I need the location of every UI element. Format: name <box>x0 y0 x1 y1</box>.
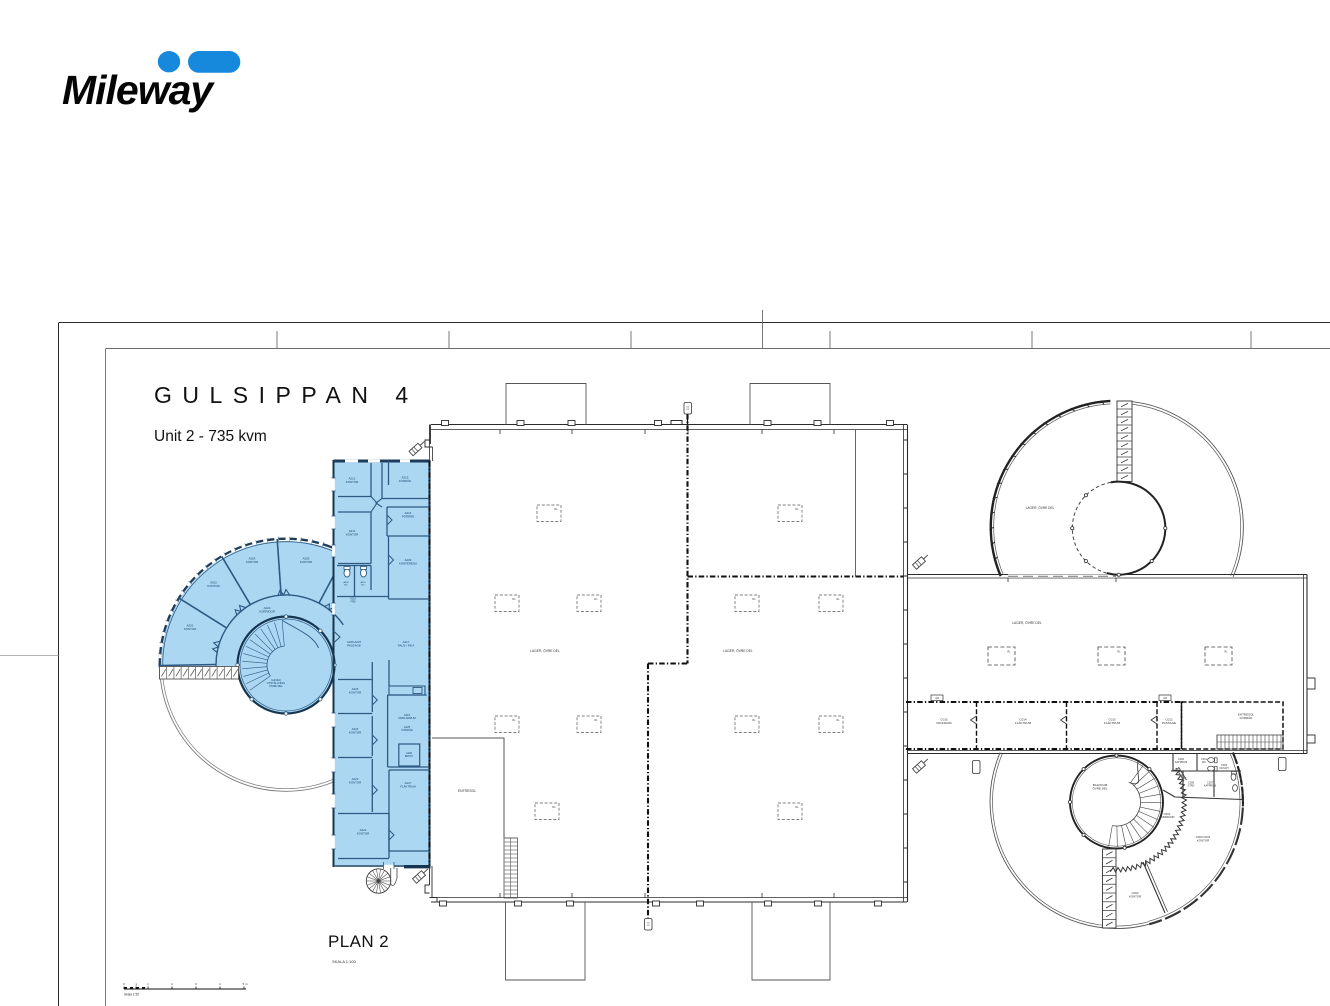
svg-text:0: 0 <box>123 982 125 986</box>
svg-text:RL: RL <box>1117 650 1121 654</box>
svg-text:2: 2 <box>171 982 173 986</box>
svg-text:Mileway: Mileway <box>62 67 215 113</box>
svg-text:RL: RL <box>795 805 799 809</box>
svg-text:RL: RL <box>512 597 516 601</box>
svg-text:RL: RL <box>594 597 598 601</box>
svg-text:A206 A207PASSAGE: A206 A207PASSAGE <box>347 640 362 647</box>
svg-text:PLAN 2: PLAN 2 <box>328 932 389 951</box>
svg-text:4x8: 4x8 <box>935 697 940 700</box>
svg-text:RL: RL <box>1007 650 1011 654</box>
svg-text:RL: RL <box>552 805 556 809</box>
svg-text:C013FLÄKTRUM: C013FLÄKTRUM <box>1104 718 1121 725</box>
svg-text:RL: RL <box>752 718 756 722</box>
svg-text:SKALA 1:100: SKALA 1:100 <box>332 959 357 964</box>
svg-text:C014FLÄKTRUM: C014FLÄKTRUM <box>1015 718 1032 725</box>
svg-text:RL: RL <box>836 597 840 601</box>
svg-text:C008STÄD: C008STÄD <box>1188 782 1195 788</box>
svg-text:Unit 2 - 735 kvm: Unit 2 - 735 kvm <box>154 428 267 445</box>
svg-text:C002KONTOR: C002KONTOR <box>1129 891 1141 898</box>
svg-text:C009DUSCH: C009DUSCH <box>1220 764 1229 770</box>
svg-text:RL: RL <box>752 597 756 601</box>
svg-text:1: 1 <box>147 982 149 986</box>
svg-text:GULSIPPAN 4: GULSIPPAN 4 <box>154 382 419 408</box>
svg-text:RL: RL <box>836 718 840 722</box>
svg-text:3: 3 <box>195 982 197 986</box>
svg-text:LAGER, ÖVRE DEL: LAGER, ÖVRE DEL <box>530 649 560 653</box>
svg-text:RL: RL <box>512 718 516 722</box>
svg-text:.5: .5 <box>135 983 138 987</box>
svg-text:C010KAPPRUM: C010KAPPRUM <box>1175 758 1187 764</box>
svg-text:5 m: 5 m <box>242 982 248 986</box>
svg-text:LAGER, ÖVRE DEL: LAGER, ÖVRE DEL <box>1012 621 1042 625</box>
svg-text:LAGER, ÖVRE DEL: LAGER, ÖVRE DEL <box>1026 506 1055 510</box>
svg-text:RL: RL <box>1224 650 1228 654</box>
svg-text:BALKRUMÖVRE DEL: BALKRUMÖVRE DEL <box>1092 783 1108 790</box>
svg-text:RL: RL <box>554 507 558 511</box>
svg-text:ENTRESOL: ENTRESOL <box>458 789 476 793</box>
svg-text:RL: RL <box>594 718 598 722</box>
svg-text:C011WC: C011WC <box>1201 758 1207 764</box>
svg-text:C015PANNRUM: C015PANNRUM <box>937 718 952 725</box>
svg-text:C003 C004KONTOR: C003 C004KONTOR <box>1196 835 1211 842</box>
svg-text:LAGER, ÖVRE DEL: LAGER, ÖVRE DEL <box>723 649 753 653</box>
svg-text:ENTRESOLFÖRRÅD: ENTRESOLFÖRRÅD <box>1238 713 1255 720</box>
svg-text:C012PASSAGE: C012PASSAGE <box>1162 718 1176 725</box>
svg-text:Skala 1:50: Skala 1:50 <box>124 993 139 997</box>
svg-text:RL: RL <box>795 507 799 511</box>
svg-text:4: 4 <box>219 982 221 986</box>
svg-text:4x8: 4x8 <box>1163 697 1168 700</box>
